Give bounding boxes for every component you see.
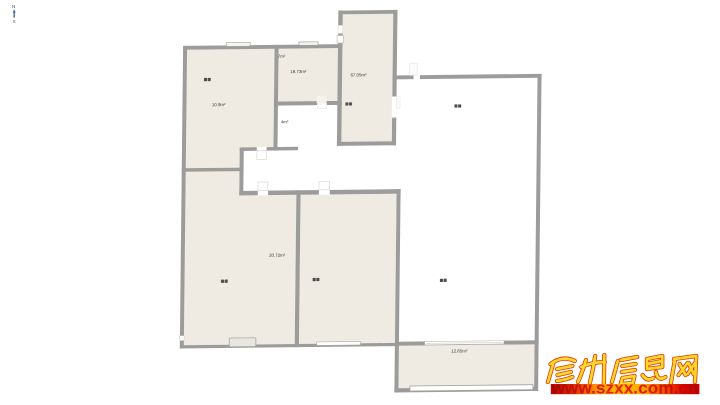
svg-text:7m²: 7m²: [278, 54, 286, 59]
svg-text:10.9m²: 10.9m²: [212, 102, 226, 107]
svg-text:16.73m²: 16.73m²: [290, 69, 307, 74]
svg-text:S: S: [13, 19, 16, 24]
svg-text:20.72m²: 20.72m²: [269, 253, 286, 258]
svg-text:67.05m²: 67.05m²: [350, 72, 367, 77]
svg-text:4m²: 4m²: [281, 119, 289, 124]
svg-text:12.85m²: 12.85m²: [451, 348, 468, 353]
svg-text:www.szxx.com.cn: www.szxx.com.cn: [550, 380, 698, 398]
svg-text:N: N: [12, 4, 15, 9]
